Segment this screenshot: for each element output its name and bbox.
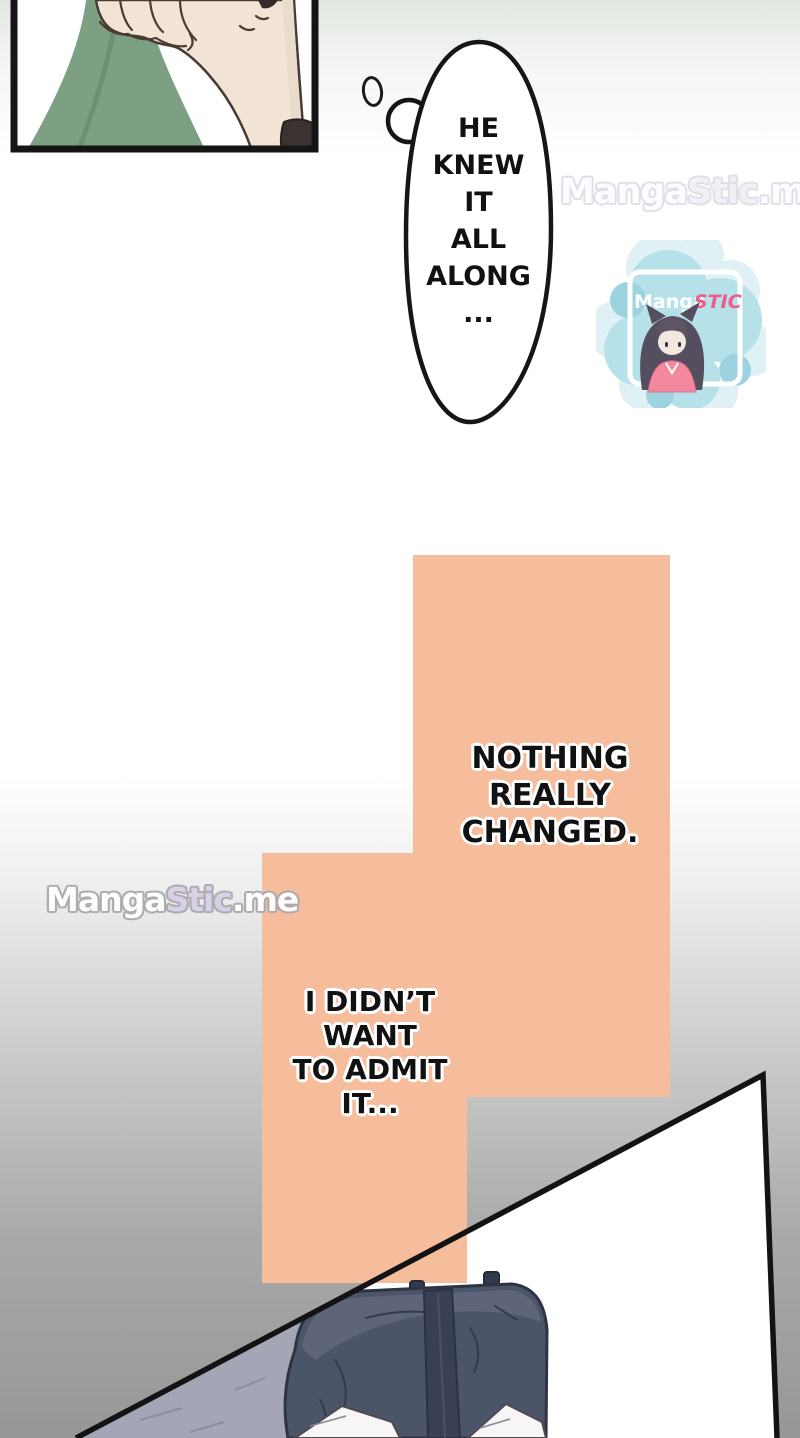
bubble-line: ALL — [396, 221, 561, 258]
logo-text-stic: STIC — [694, 291, 742, 313]
watermark-text: Stic — [166, 880, 232, 919]
caption-line: NOTHING — [425, 740, 675, 777]
panel-hand-sleeve — [0, 0, 330, 162]
watermark-text: Manga — [46, 880, 166, 919]
bubble-line: IT — [396, 184, 561, 221]
watermark-text: .me — [232, 880, 298, 919]
bubble-line: ... — [396, 295, 561, 332]
watermark-text: Manga — [560, 172, 687, 212]
caption-line: WANT — [250, 1019, 490, 1053]
watermark-mid-left: MangaStic.me — [46, 880, 298, 919]
caption-line: REALLY — [425, 777, 675, 814]
panel-bag — [0, 1060, 800, 1438]
watermark-text: .me — [758, 172, 800, 212]
mangastic-logo-sticker: Manga STIC — [596, 240, 766, 408]
caption-line: I DIDN’T — [250, 985, 490, 1019]
duffel-bag — [60, 1272, 547, 1438]
bubble-line: KNEW — [396, 147, 561, 184]
watermark-text: Stic — [687, 172, 758, 212]
caption-line: CHANGED. — [425, 814, 675, 851]
caption-nothing-really-changed: NOTHING REALLY CHANGED. — [425, 740, 675, 851]
manga-page: HE KNEW IT ALL ALONG ... MangaStic.me M — [0, 0, 800, 1438]
bubble-text: HE KNEW IT ALL ALONG ... — [396, 110, 561, 332]
bubble-line: ALONG — [396, 258, 561, 295]
watermark-top-right: MangaStic.me — [560, 172, 800, 212]
bubble-line: HE — [396, 110, 561, 147]
